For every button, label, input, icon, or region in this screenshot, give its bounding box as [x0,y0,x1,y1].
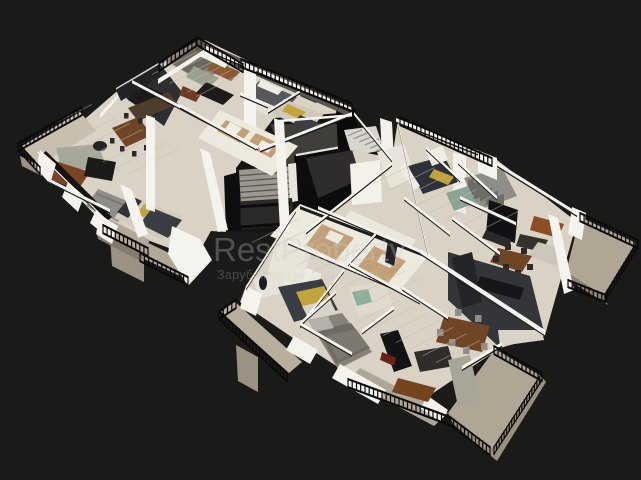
svg-text:Зарубежная недвижимость: Зарубежная недвижимость [217,268,382,282]
svg-text:RestProperty: RestProperty [213,231,406,268]
